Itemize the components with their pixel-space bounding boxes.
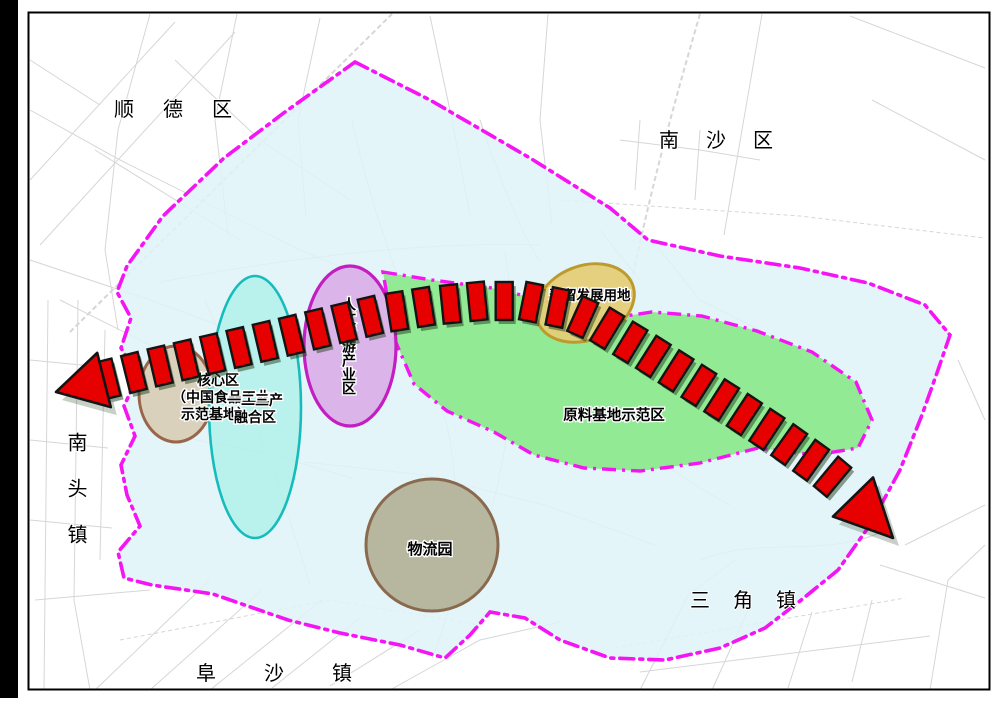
district-label-fusha: 阜沙镇 (196, 662, 400, 685)
road-line (905, 505, 985, 545)
district-label-nantou: 南头镇 (64, 432, 87, 570)
planning-map: 顺德区 南沙区 南头镇 阜沙镇 三角镇 核心区 （中国食品工业 示范基地） 一二… (0, 0, 997, 703)
district-label-shunde: 顺德区 (114, 98, 261, 121)
zone-label-integration-line1: 一二三产 (227, 392, 283, 408)
road-line (95, 580, 210, 690)
road-line (635, 120, 640, 190)
district-label-sanjiao: 三角镇 (690, 589, 819, 612)
road-line (872, 100, 985, 160)
road-line (880, 565, 985, 598)
road-line (724, 14, 762, 235)
district-label-nansha: 南沙区 (659, 129, 800, 152)
road-line (958, 360, 985, 420)
road-line (44, 300, 48, 690)
road-line (930, 545, 985, 690)
road-line (788, 612, 812, 688)
zone-label-integration-line2: 融合区 (234, 409, 276, 425)
map-canvas: 顺德区 南沙区 南头镇 阜沙镇 三角镇 核心区 （中国食品工业 示范基地） 一二… (0, 0, 997, 703)
road-line (35, 590, 150, 600)
road-line (850, 16, 985, 68)
arrow-dash (440, 284, 461, 324)
arrow-dash (496, 282, 513, 320)
road-line (852, 600, 872, 682)
zone-label-raw-material: 原料基地示范区 (563, 406, 665, 424)
road-line (30, 60, 100, 105)
left-black-band (0, 0, 18, 698)
arrow-dash (467, 282, 488, 322)
zone-label-logistics: 物流园 (407, 540, 452, 558)
